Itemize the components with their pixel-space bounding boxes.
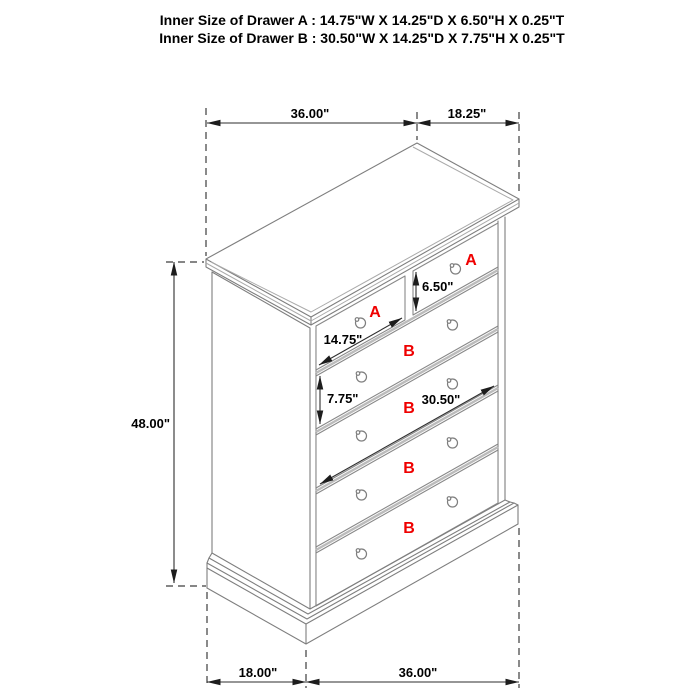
dim-bottom-width-label: 36.00" — [399, 665, 438, 680]
dimension-labels: 36.00" 18.25" 48.00" 18.00" 36.00" 6.50"… — [131, 106, 486, 680]
drawer-b1-label: B — [403, 343, 415, 360]
knob-drawer-b4-right — [447, 497, 457, 507]
knob-drawer-b1-right — [447, 320, 457, 330]
knob-drawer-a-left — [355, 318, 365, 328]
drawer-a-left-label: A — [369, 304, 381, 321]
dim-drawer-a-width-label: 14.75" — [324, 332, 363, 347]
dim-drawer-b-height-label: 7.75" — [327, 391, 358, 406]
title-line-1: Inner Size of Drawer A : 14.75"W X 14.25… — [160, 12, 565, 28]
knob-drawer-b2-right — [447, 379, 457, 389]
knob-drawer-b3-left — [356, 490, 366, 500]
knob-drawer-b4-left — [356, 549, 366, 559]
drawer-b3-label: B — [403, 460, 415, 477]
dim-drawer-b-width-label: 30.50" — [422, 392, 461, 407]
knob-drawer-b3-right — [447, 438, 457, 448]
dim-drawer-a-height-label: 6.50" — [422, 279, 453, 294]
knob-drawer-b1-left — [356, 372, 366, 382]
drawer-a-right-label: A — [465, 252, 477, 269]
dim-top-width-label: 36.00" — [291, 106, 330, 121]
dim-top-depth-label: 18.25" — [448, 106, 487, 121]
title-line-2: Inner Size of Drawer B : 30.50"W X 14.25… — [159, 30, 565, 46]
knob-drawer-a-right — [450, 264, 460, 274]
dim-height-label: 48.00" — [131, 416, 170, 431]
furniture-dimension-diagram: Inner Size of Drawer A : 14.75"W X 14.25… — [0, 0, 700, 700]
dim-bottom-depth-label: 18.00" — [239, 665, 278, 680]
side-panel-top-edge — [212, 272, 310, 328]
drawer-b4-label: B — [403, 520, 415, 537]
drawer-b2-label: B — [403, 400, 415, 417]
knob-drawer-b2-left — [356, 431, 366, 441]
chest-diagram-canvas: Inner Size of Drawer A : 14.75"W X 14.25… — [0, 0, 700, 700]
